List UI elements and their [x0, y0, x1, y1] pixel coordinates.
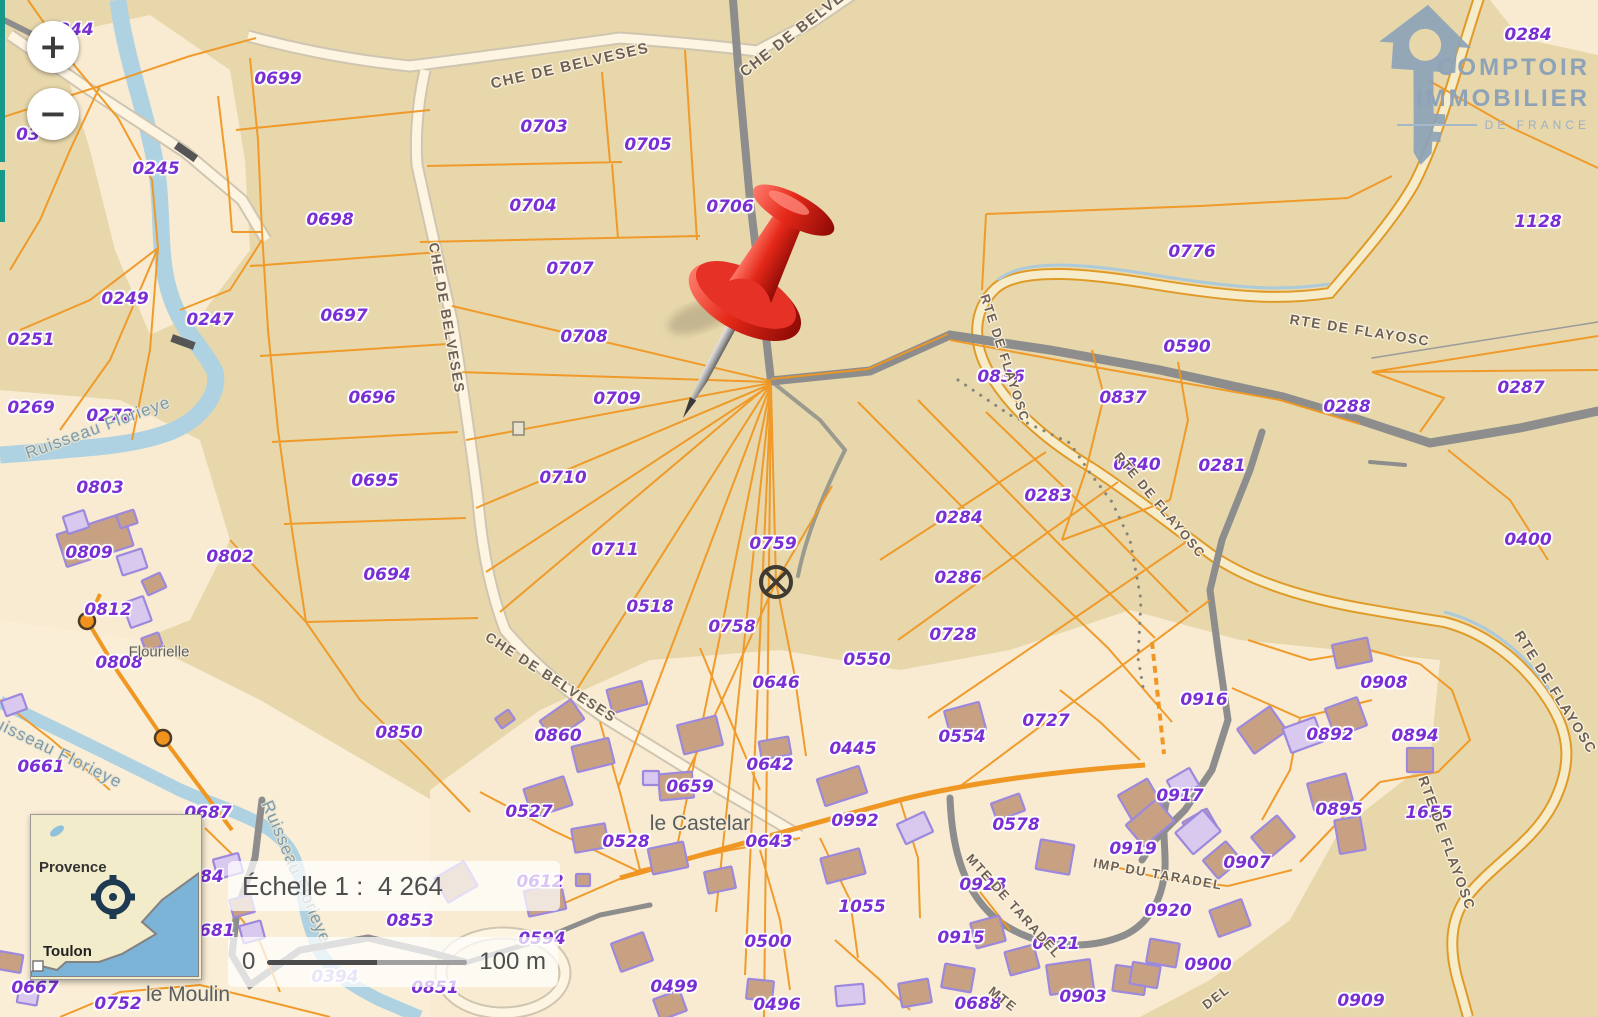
left-edge-strip [0, 170, 5, 222]
scale-label: Échelle 1 : 4 264 [242, 871, 443, 902]
building-footprint [1036, 839, 1075, 874]
scale-bar-end: 100 m [479, 948, 546, 976]
building-footprint [1129, 962, 1160, 989]
minimap-region-label: Provence [39, 859, 107, 876]
small-structure [513, 422, 524, 435]
building-footprint [576, 874, 590, 886]
building-footprint [746, 979, 774, 1002]
building-footprint [643, 771, 659, 785]
overview-minimap[interactable]: Provence Toulon [30, 814, 202, 980]
building-footprint [658, 772, 694, 801]
building-footprint [0, 951, 23, 973]
zoom-in-button[interactable]: + [27, 21, 79, 73]
building-footprint [1407, 748, 1433, 772]
building-footprint [1046, 959, 1094, 995]
building-footprint [835, 984, 865, 1006]
logo-rule [1397, 124, 1477, 126]
logo-line1: COMPTOIR [1437, 52, 1590, 83]
scale-bar [267, 960, 467, 965]
building-footprint [1146, 939, 1180, 968]
building-footprint [1334, 816, 1366, 854]
scale-bar-start: 0 [242, 948, 255, 976]
map-viewer: 0244030699070307050704070606980245070702… [0, 0, 1598, 1017]
left-edge-strip [0, 0, 5, 162]
plus-icon: + [39, 27, 68, 67]
zoom-out-button[interactable]: − [27, 88, 79, 140]
minimap-city-marker [33, 961, 43, 971]
logo-line2: IMMOBILIER [1416, 83, 1590, 114]
brand-logo: COMPTOIR IMMOBILIER DE FRANCE [1346, 0, 1596, 165]
building-footprint [941, 964, 975, 993]
minimap-city-label: Toulon [43, 943, 92, 960]
scale-bar-box: 0 100 m [228, 937, 558, 987]
building-footprint [704, 866, 736, 893]
building-footprint [571, 823, 609, 853]
scale-text-box: Échelle 1 : 4 264 [228, 861, 560, 911]
minus-icon: − [39, 94, 68, 134]
building-footprint [17, 986, 39, 1005]
logo-line3: DE FRANCE [1485, 118, 1590, 132]
building-footprint [759, 737, 792, 760]
building-footprint [898, 979, 932, 1008]
